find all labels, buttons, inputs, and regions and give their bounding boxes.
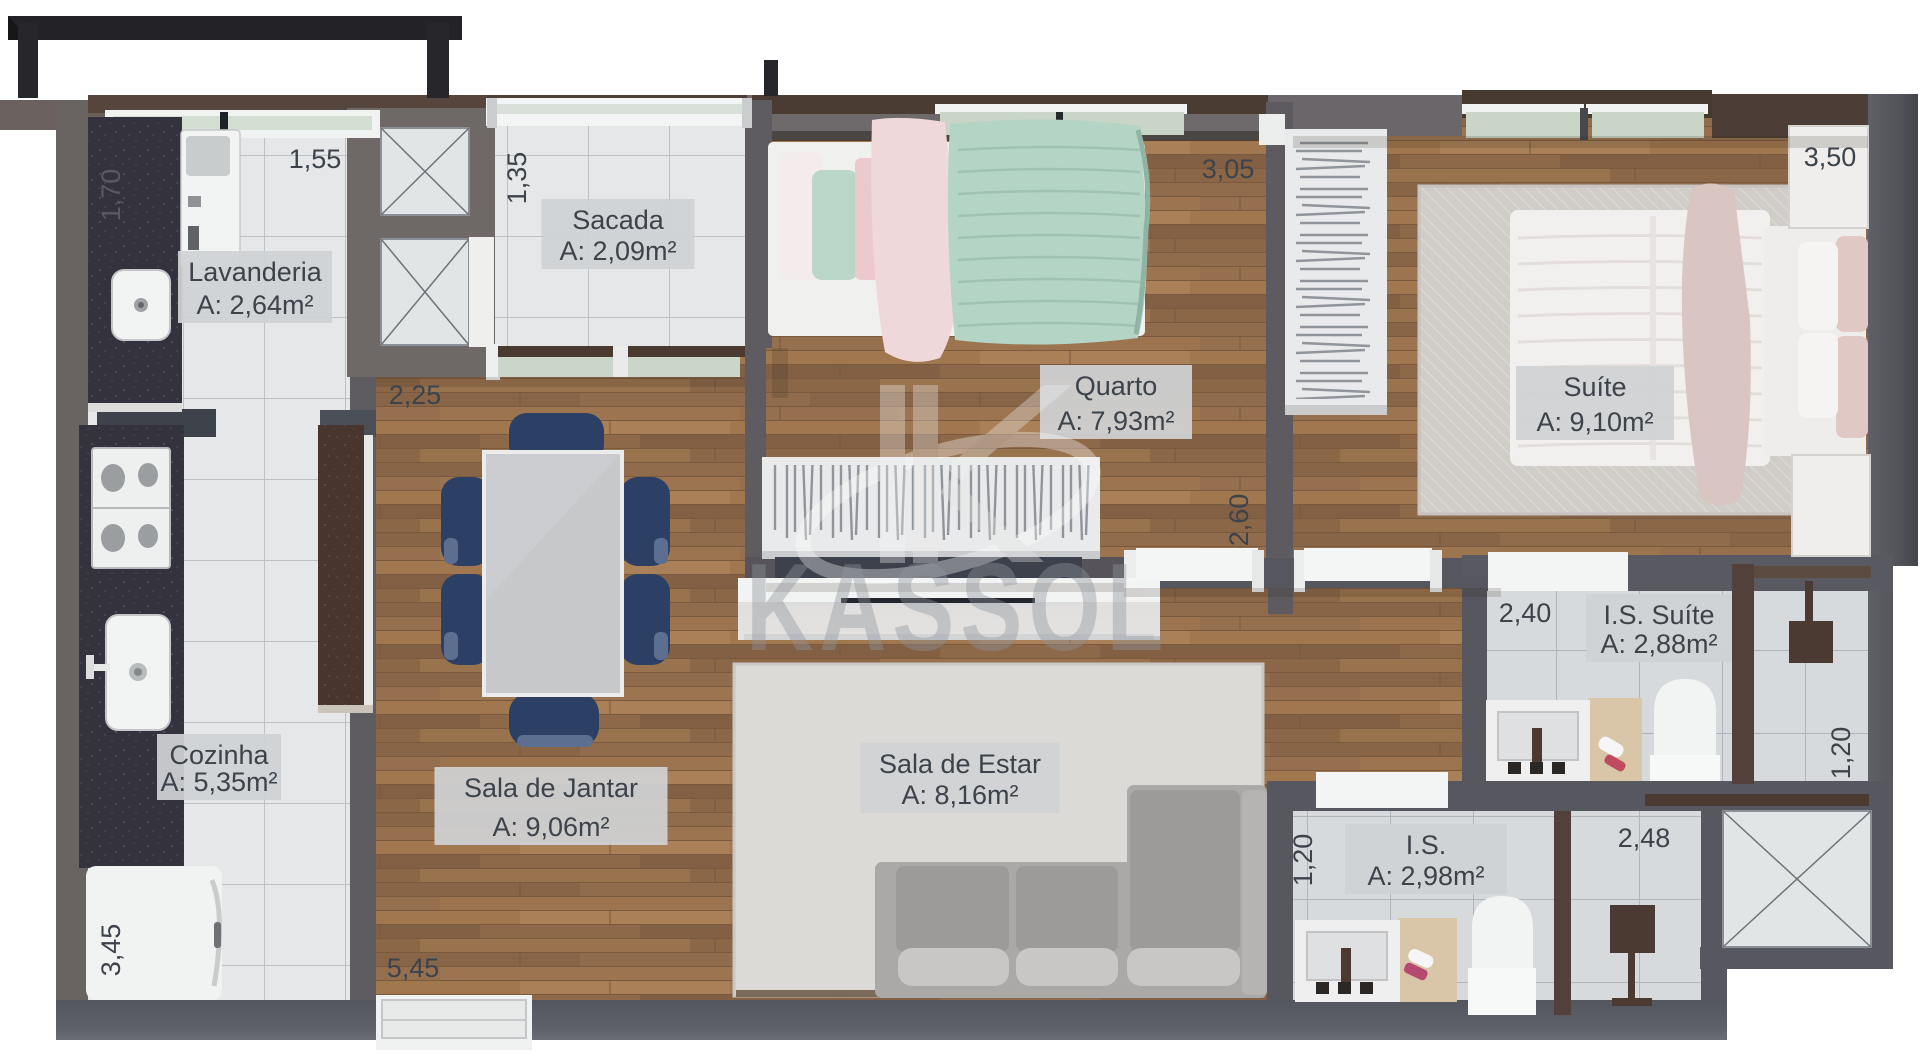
svg-text:A: 2,98m²: A: 2,98m² [1367,861,1484,891]
svg-text:I.S.: I.S. [1406,830,1447,860]
svg-text:1,20: 1,20 [1826,727,1856,780]
svg-text:I.S. Suíte: I.S. Suíte [1603,600,1714,630]
svg-text:2,48: 2,48 [1618,823,1671,853]
svg-text:Cozinha: Cozinha [169,740,269,770]
svg-text:A: 7,93m²: A: 7,93m² [1057,406,1174,436]
svg-text:Sacada: Sacada [572,205,665,235]
svg-text:A: 2,64m²: A: 2,64m² [196,290,313,320]
svg-text:1,20: 1,20 [1288,834,1318,887]
svg-text:3,45: 3,45 [96,924,126,977]
svg-text:A: 9,06m²: A: 9,06m² [492,812,609,842]
svg-text:2,25: 2,25 [389,380,442,410]
svg-text:Suíte: Suíte [1563,372,1626,402]
svg-text:3,50: 3,50 [1804,142,1857,172]
svg-text:Sala de Estar: Sala de Estar [879,749,1041,779]
svg-text:3,05: 3,05 [1202,154,1255,184]
svg-text:Sala de Jantar: Sala de Jantar [464,773,638,803]
svg-text:KASSOL: KASSOL [746,539,1170,677]
svg-text:1,55: 1,55 [289,144,342,174]
svg-text:1,35: 1,35 [502,152,532,205]
svg-text:A: 5,35m²: A: 5,35m² [160,767,277,797]
svg-text:2,40: 2,40 [1499,598,1552,628]
svg-text:A: 2,09m²: A: 2,09m² [559,236,676,266]
svg-text:Quarto: Quarto [1075,371,1158,401]
svg-text:A: 2,88m²: A: 2,88m² [1600,629,1717,659]
svg-text:1,70: 1,70 [96,169,126,222]
svg-text:5,45: 5,45 [387,953,440,983]
svg-text:2,60: 2,60 [1224,494,1254,547]
svg-text:A: 9,10m²: A: 9,10m² [1536,407,1653,437]
svg-text:A: 8,16m²: A: 8,16m² [901,780,1018,810]
svg-text:Lavanderia: Lavanderia [188,257,323,287]
